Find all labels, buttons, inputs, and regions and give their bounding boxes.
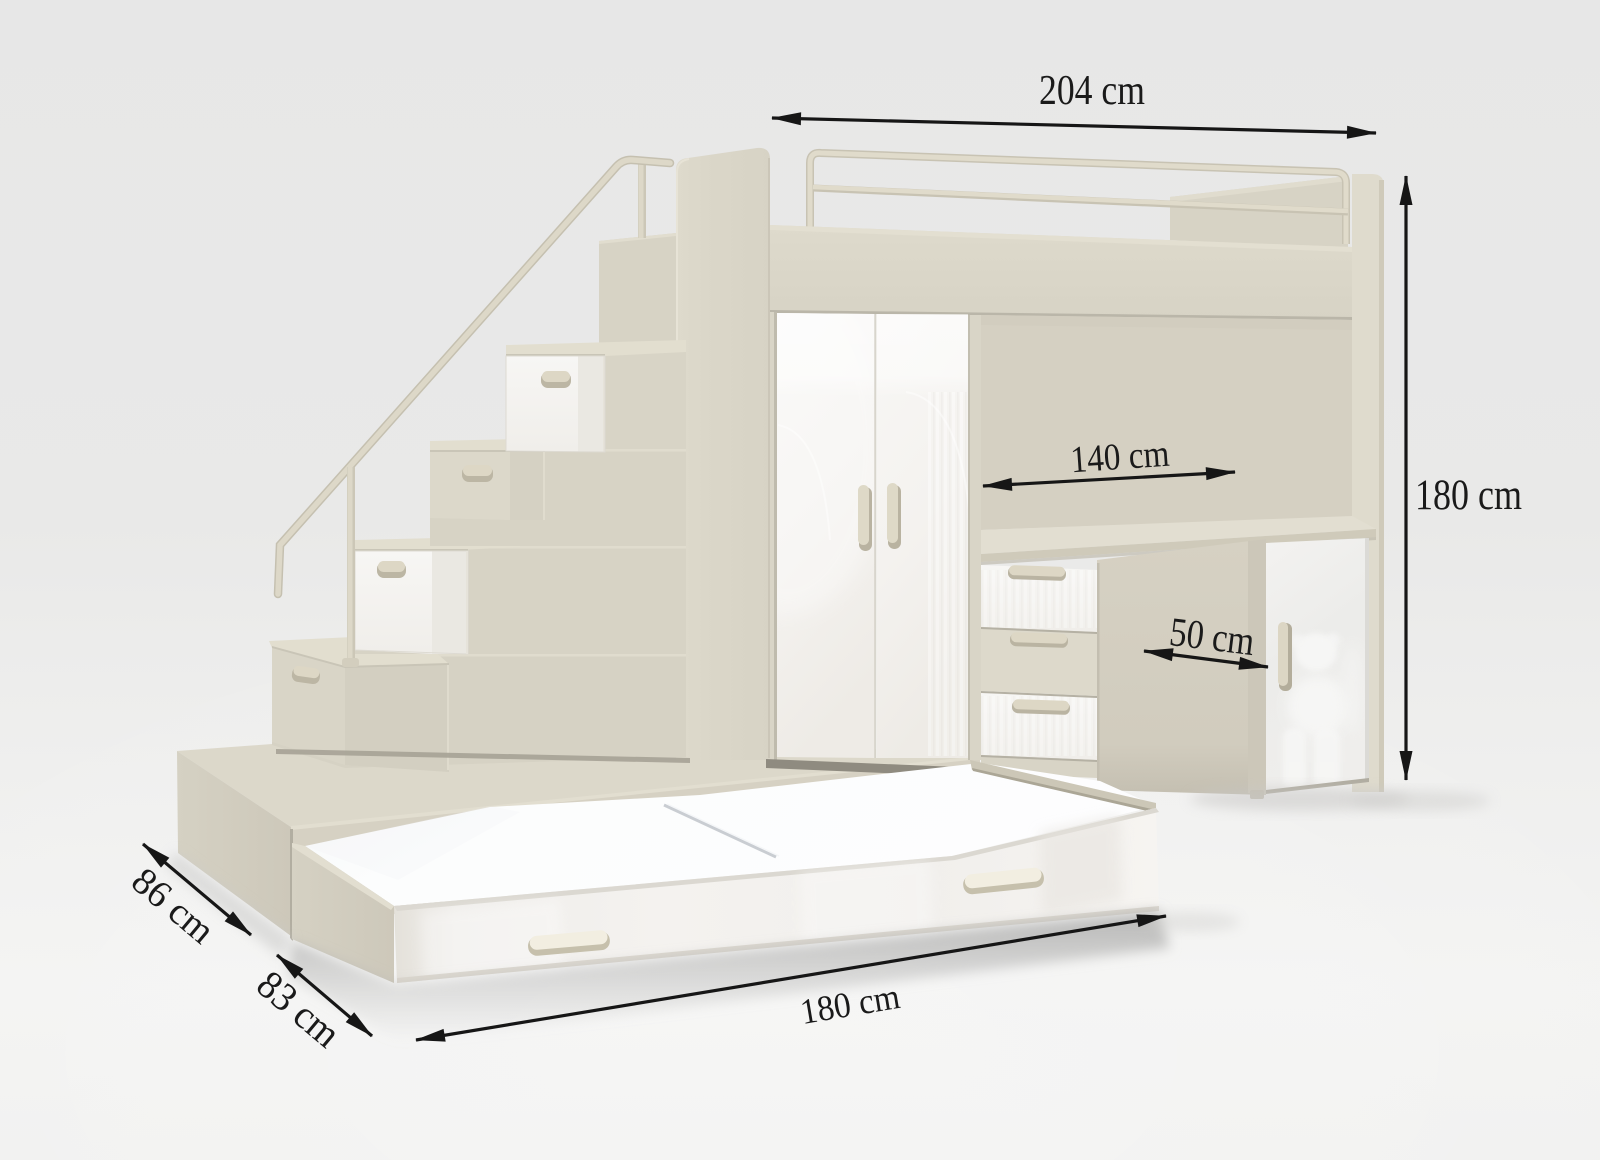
svg-text:140 cm: 140 cm — [1069, 433, 1171, 482]
svg-text:180 cm: 180 cm — [1415, 472, 1522, 519]
svg-text:204 cm: 204 cm — [1039, 68, 1145, 114]
